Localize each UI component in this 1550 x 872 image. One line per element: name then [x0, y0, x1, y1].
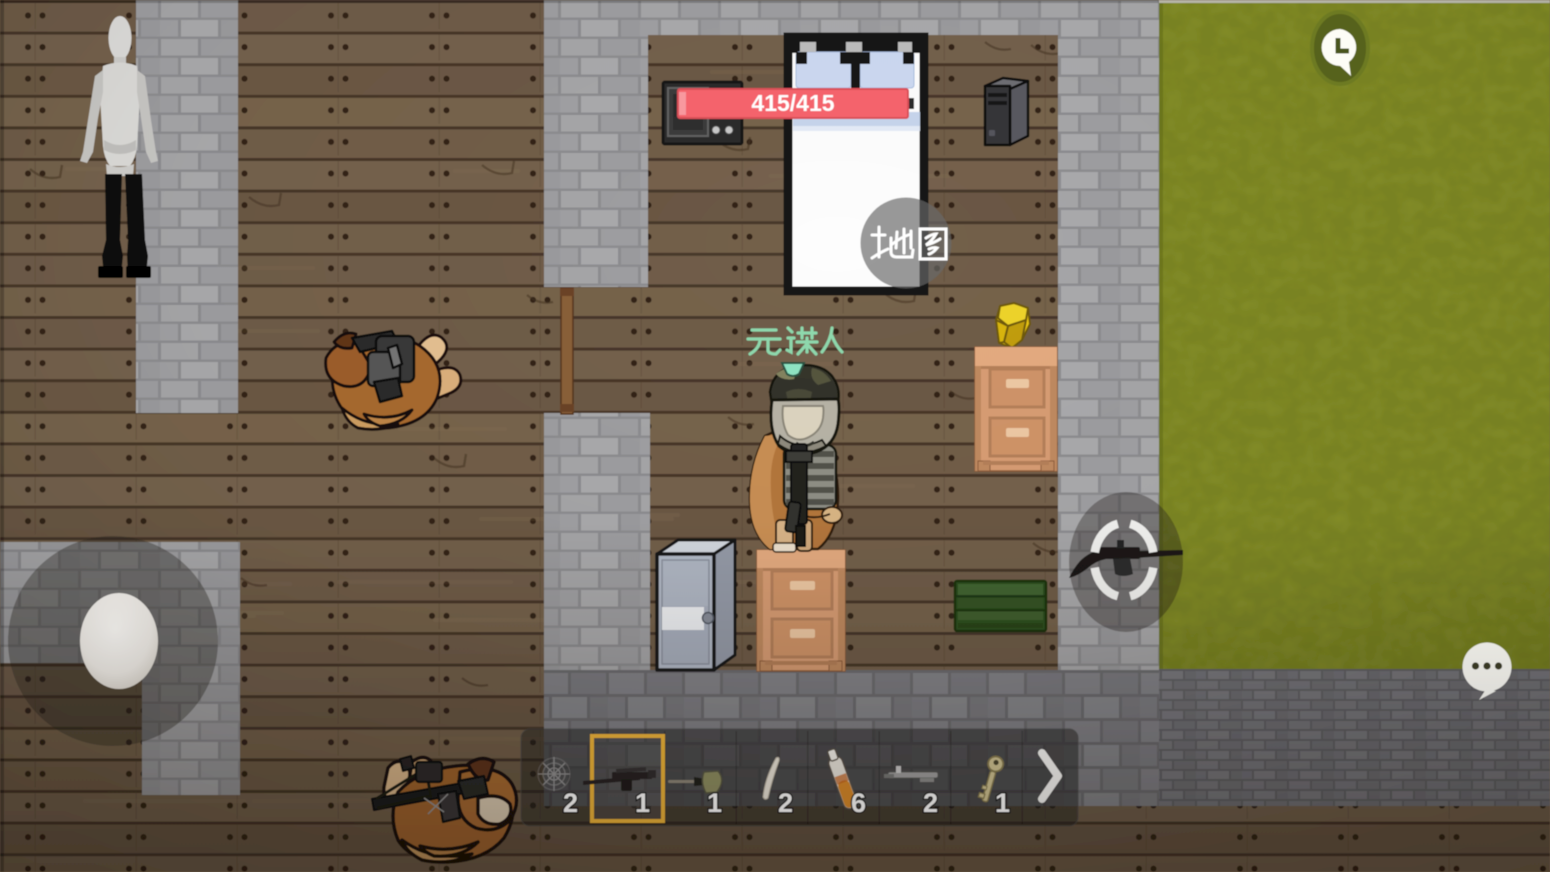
svg-text:415/415: 415/415	[751, 90, 834, 116]
